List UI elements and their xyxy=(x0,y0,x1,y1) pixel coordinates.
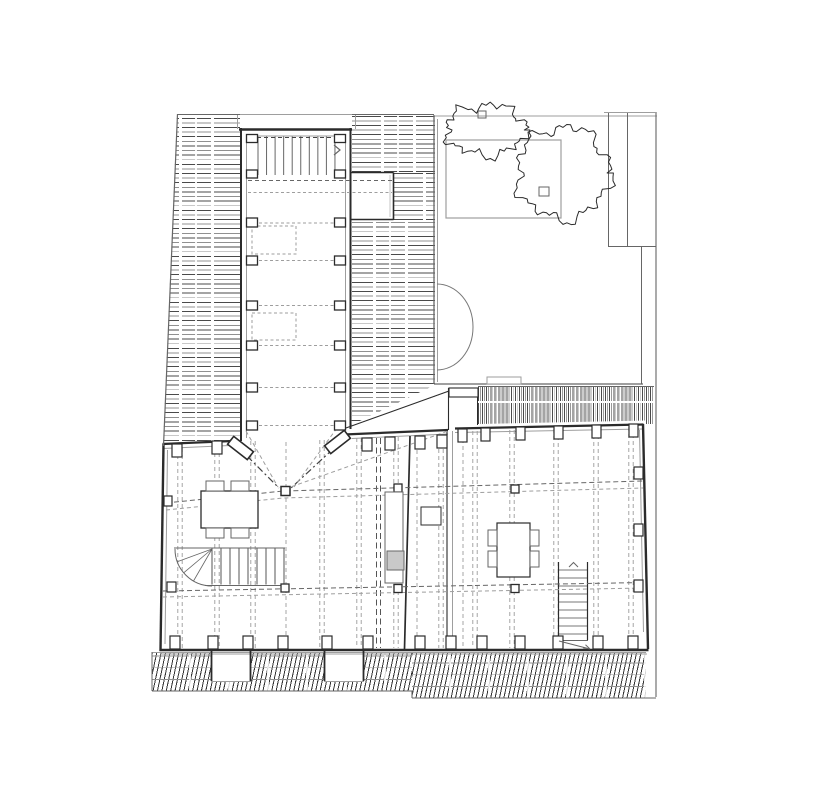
strip-pier xyxy=(247,341,258,350)
chair xyxy=(231,481,249,491)
column xyxy=(394,484,402,492)
tree-trunk-2 xyxy=(539,187,549,196)
wall-pier xyxy=(634,524,643,536)
strip-pier xyxy=(247,170,258,178)
chair xyxy=(530,530,539,546)
strip-pier xyxy=(335,256,346,265)
pilaster xyxy=(172,444,182,457)
lightwell-top xyxy=(449,388,478,397)
bay-2-floor xyxy=(324,652,364,681)
plan-linework xyxy=(0,0,822,800)
strip-pier xyxy=(335,383,346,392)
pilaster xyxy=(212,441,222,454)
pilaster xyxy=(515,636,525,649)
tree-canopy-2 xyxy=(514,125,615,225)
strip-pier xyxy=(247,218,258,227)
cabinet-box xyxy=(421,507,441,525)
pilaster xyxy=(437,435,447,448)
strip-pier xyxy=(335,218,346,227)
pilaster xyxy=(554,426,563,439)
table-left xyxy=(201,491,258,528)
strip-pier xyxy=(247,421,258,430)
strip-pier xyxy=(247,135,258,143)
pilaster xyxy=(208,636,218,649)
strip-floor xyxy=(242,130,350,442)
chair xyxy=(206,528,224,538)
pilaster xyxy=(278,636,288,649)
wall-pier xyxy=(634,467,643,479)
pilaster xyxy=(446,636,456,649)
wall-pier xyxy=(164,496,172,506)
pilaster xyxy=(170,636,180,649)
planter xyxy=(446,140,561,218)
tree-trunk-1 xyxy=(478,111,486,118)
counter-sink xyxy=(387,551,404,570)
strip-pier xyxy=(335,421,346,430)
table-right xyxy=(497,523,530,577)
door-swing-arc xyxy=(437,284,473,370)
pilaster xyxy=(243,636,253,649)
chair xyxy=(206,481,224,491)
pilaster xyxy=(362,438,372,451)
tree-canopy-1 xyxy=(443,102,531,161)
strip-pier xyxy=(247,383,258,392)
strip-pier xyxy=(335,341,346,350)
column xyxy=(281,487,290,496)
pilaster xyxy=(385,437,395,450)
chair xyxy=(231,528,249,538)
floor-plan-canvas xyxy=(0,0,822,800)
column xyxy=(511,485,519,493)
pilaster xyxy=(553,636,563,649)
pilaster xyxy=(322,636,332,649)
pilaster xyxy=(477,636,487,649)
column xyxy=(394,585,402,593)
pilaster xyxy=(458,429,467,442)
roof-edge-left xyxy=(164,114,178,446)
pilaster xyxy=(415,436,425,449)
strip-pier xyxy=(247,301,258,310)
pilaster xyxy=(593,636,603,649)
bay-1-floor xyxy=(211,652,251,681)
column xyxy=(281,584,289,592)
pilaster xyxy=(628,636,638,649)
chair xyxy=(488,551,497,567)
pilaster xyxy=(481,428,490,441)
strip-pier xyxy=(335,170,346,178)
courtyard-step xyxy=(487,377,521,384)
strip-pier xyxy=(335,301,346,310)
pilaster xyxy=(415,636,425,649)
wall-pier xyxy=(167,582,176,592)
pilaster xyxy=(629,424,638,437)
pilaster xyxy=(592,425,601,438)
strip-pier xyxy=(247,256,258,265)
wall-pier xyxy=(634,580,643,592)
chair xyxy=(530,551,539,567)
pilaster xyxy=(516,427,525,440)
strip-pier xyxy=(335,135,346,143)
chair xyxy=(488,530,497,546)
pilaster xyxy=(363,636,373,649)
column xyxy=(511,585,519,593)
